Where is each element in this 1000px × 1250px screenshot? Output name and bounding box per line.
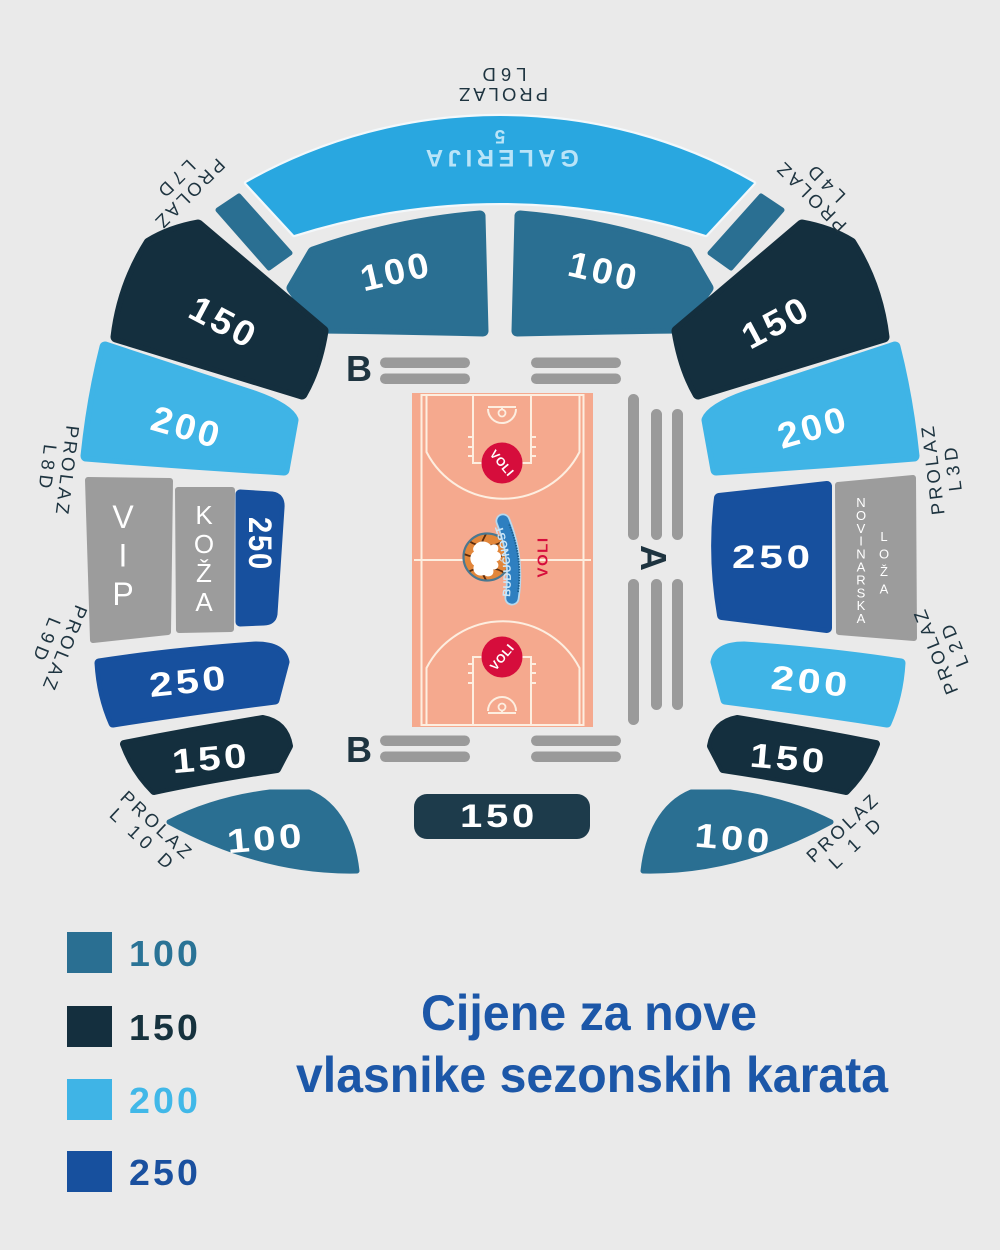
svg-text:250: 250: [129, 1152, 201, 1193]
svg-text:I: I: [119, 538, 128, 574]
svg-text:150: 150: [129, 1007, 201, 1048]
svg-text:L: L: [880, 529, 887, 544]
svg-text:150: 150: [171, 737, 252, 782]
svg-text:150: 150: [748, 737, 829, 782]
svg-text:100: 100: [129, 933, 201, 974]
svg-text:250: 250: [242, 517, 278, 571]
svg-text:250: 250: [732, 539, 814, 575]
svg-text:PROLAZ: PROLAZ: [456, 84, 548, 105]
svg-text:V: V: [112, 499, 134, 535]
svg-text:VOLI: VOLI: [535, 536, 552, 577]
svg-text:200: 200: [129, 1080, 201, 1121]
svg-text:A: A: [195, 587, 213, 617]
svg-text:5: 5: [494, 125, 505, 146]
svg-text:B: B: [346, 729, 372, 770]
svg-text:150: 150: [460, 798, 538, 834]
svg-text:Ž: Ž: [196, 558, 212, 588]
svg-text:GALERIJA: GALERIJA: [421, 144, 578, 171]
svg-text:P: P: [112, 576, 133, 612]
svg-text:vlasnike sezonskih karata: vlasnike sezonskih karata: [296, 1047, 889, 1103]
svg-text:O: O: [194, 529, 214, 559]
svg-text:Cijene za nove: Cijene za nove: [421, 985, 757, 1041]
svg-text:B: B: [346, 348, 372, 389]
svg-text:A: A: [880, 582, 889, 597]
svg-text:O: O: [879, 547, 889, 562]
svg-text:A: A: [633, 545, 674, 571]
svg-text:A: A: [857, 611, 866, 626]
svg-text:L6D: L6D: [478, 64, 527, 85]
svg-text:Ž: Ž: [880, 564, 888, 579]
svg-text:K: K: [195, 500, 213, 530]
svg-text:100: 100: [693, 817, 774, 862]
svg-text:100: 100: [226, 817, 307, 862]
